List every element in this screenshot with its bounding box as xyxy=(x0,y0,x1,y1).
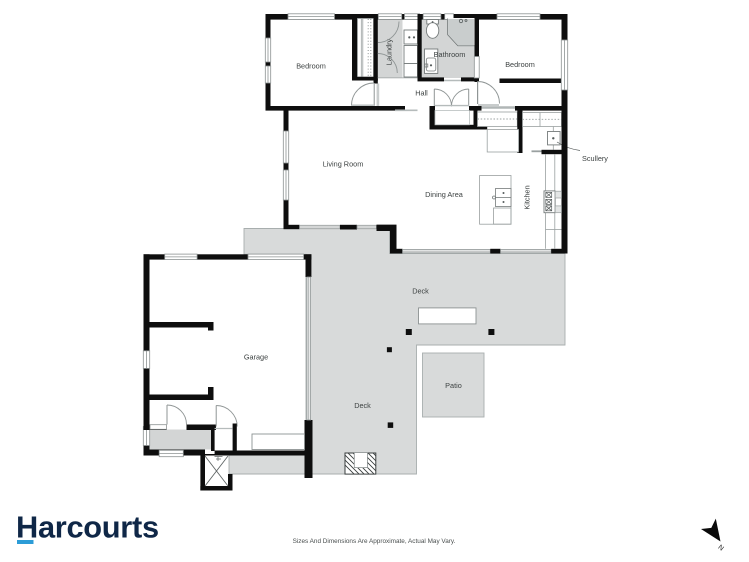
svg-text:Patio: Patio xyxy=(445,381,462,390)
svg-text:N: N xyxy=(716,544,724,553)
svg-text:Dining Area: Dining Area xyxy=(425,190,464,199)
svg-text:Harcourts: Harcourts xyxy=(16,510,159,545)
svg-text:Scullery: Scullery xyxy=(582,154,608,163)
svg-text:Laundry: Laundry xyxy=(385,38,394,65)
svg-text:Garage: Garage xyxy=(244,353,268,362)
svg-text:Kitchen: Kitchen xyxy=(523,185,532,209)
svg-text:Sizes And Dimensions Are Appro: Sizes And Dimensions Are Approximate, Ac… xyxy=(293,538,456,545)
svg-text:Living Room: Living Room xyxy=(323,160,364,169)
svg-text:Deck: Deck xyxy=(354,401,371,410)
svg-text:Deck: Deck xyxy=(412,287,429,296)
svg-text:Hall: Hall xyxy=(415,89,428,98)
svg-text:Bedroom: Bedroom xyxy=(296,62,326,71)
svg-text:Bedroom: Bedroom xyxy=(505,60,535,69)
svg-text:Bathroom: Bathroom xyxy=(434,50,466,59)
